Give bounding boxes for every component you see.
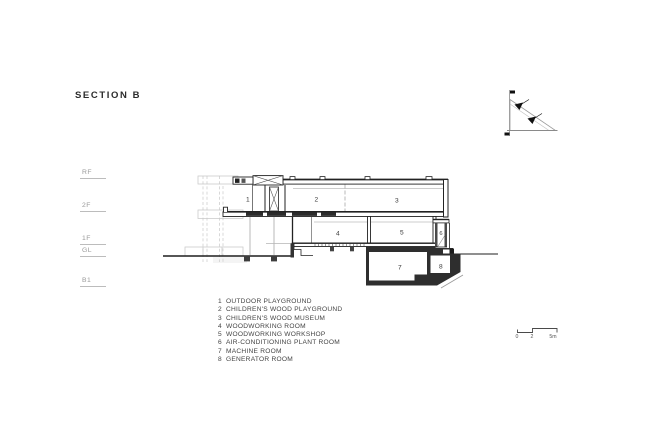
elevator-shaft (253, 185, 286, 212)
legend-item: 5WOODWORKING WORKSHOP (218, 331, 342, 339)
room-label-8: 8 (439, 263, 443, 270)
room-legend: 1OUTDOOR PLAYGROUND 2CHILDREN'S WOOD PLA… (218, 298, 342, 364)
legend-item: 7MACHINE ROOM (218, 348, 342, 356)
scale-label-2: 2 (531, 334, 534, 340)
legend-item: 2CHILDREN'S WOOD PLAYGROUND (218, 306, 342, 314)
wall-2f-right (444, 180, 449, 218)
legend-item: 6AIR-CONDITIONING PLANT ROOM (218, 339, 342, 347)
level-label-2f: 2F (82, 202, 91, 209)
floor-slab-2f (223, 207, 448, 216)
level-datum-lines (80, 179, 106, 287)
section-key-plan (505, 90, 558, 136)
basement-structure (366, 247, 463, 289)
room-label-2: 2 (315, 197, 319, 204)
room-label-7: 7 (398, 264, 402, 271)
scale-label-0: 0 (516, 334, 519, 340)
scale-label-5m: 5m (549, 334, 556, 340)
level-label-rf: RF (82, 169, 92, 176)
page-title: SECTION B (75, 90, 141, 101)
walls-1f (293, 217, 437, 248)
level-label-b1: B1 (82, 277, 91, 284)
legend-item: 8GENERATOR ROOM (218, 356, 342, 364)
room-label-1: 1 (246, 197, 250, 204)
legend-item: 1OUTDOOR PLAYGROUND (218, 298, 342, 306)
section-b-sheet: SECTION B RF 2F 1F GL B1 1 2 3 4 5 6 7 8… (0, 0, 650, 441)
legend-item: 3CHILDREN'S WOOD MUSEUM (218, 315, 342, 323)
roof-structure (233, 176, 448, 185)
level-label-1f: 1F (82, 235, 91, 242)
legend-item: 4WOODWORKING ROOM (218, 323, 342, 331)
room-label-4: 4 (336, 230, 340, 237)
room-label-5: 5 (400, 230, 404, 237)
level-label-gl: GL (82, 247, 92, 254)
room-label-3: 3 (395, 198, 399, 205)
section-drawing (0, 0, 650, 441)
room-label-6: 6 (439, 231, 443, 237)
scale-bar (518, 329, 558, 333)
